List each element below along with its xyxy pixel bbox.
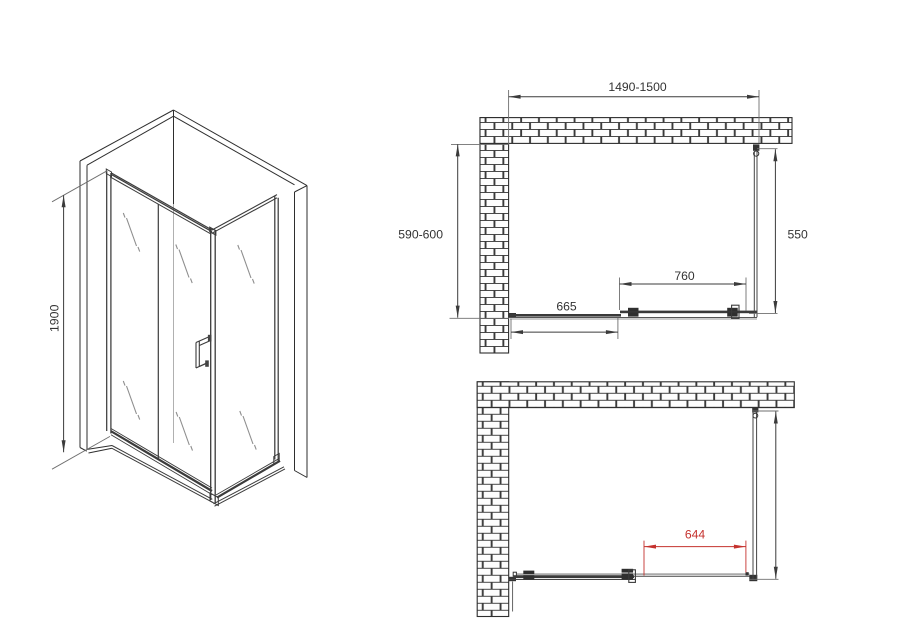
svg-text:760: 760 (674, 269, 695, 283)
svg-text:1900: 1900 (48, 304, 62, 332)
svg-text:644: 644 (685, 528, 706, 542)
svg-text:590-600: 590-600 (398, 227, 443, 241)
svg-text:665: 665 (556, 300, 577, 314)
svg-text:1490-1500: 1490-1500 (608, 80, 667, 94)
svg-text:550: 550 (788, 227, 809, 241)
